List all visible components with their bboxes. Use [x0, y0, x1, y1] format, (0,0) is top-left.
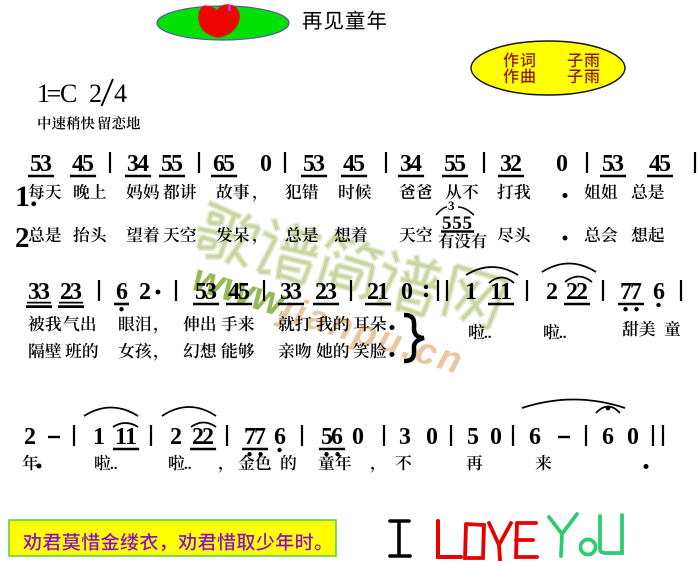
svg-text:6: 6 [602, 424, 614, 450]
svg-text:21: 21 [367, 279, 389, 305]
svg-text:0: 0 [556, 151, 568, 177]
svg-text:6: 6 [274, 424, 286, 450]
svg-text:55: 55 [161, 151, 183, 177]
svg-text:33: 33 [28, 279, 50, 305]
svg-text:0: 0 [352, 424, 364, 450]
svg-text:11: 11 [115, 424, 137, 450]
svg-text:53: 53 [195, 279, 217, 305]
svg-text:11: 11 [490, 279, 512, 305]
svg-text:6: 6 [529, 424, 541, 450]
svg-text:3: 3 [399, 424, 411, 450]
svg-text:53: 53 [602, 151, 624, 177]
svg-text:77: 77 [244, 424, 266, 450]
svg-text:55: 55 [444, 151, 466, 177]
svg-text:0: 0 [426, 424, 438, 450]
svg-text:45: 45 [72, 151, 94, 177]
svg-text:6: 6 [653, 279, 665, 305]
svg-text:2: 2 [24, 424, 36, 450]
svg-text:C: C [60, 79, 77, 108]
svg-text:..: .. [559, 326, 567, 342]
svg-text:45: 45 [649, 151, 671, 177]
svg-text:0: 0 [627, 424, 639, 450]
svg-text:77: 77 [620, 279, 642, 305]
svg-text:0: 0 [490, 424, 502, 450]
svg-text:32: 32 [500, 151, 522, 177]
svg-text:22: 22 [566, 279, 588, 305]
svg-text:34: 34 [127, 151, 149, 177]
svg-text:0: 0 [401, 279, 413, 305]
svg-text:6: 6 [116, 279, 128, 305]
svg-text:23: 23 [60, 279, 82, 305]
svg-text:..: .. [110, 457, 118, 473]
svg-text:1: 1 [465, 279, 477, 305]
svg-text:1: 1 [93, 424, 105, 450]
svg-text:56: 56 [321, 424, 343, 450]
svg-text:53: 53 [303, 151, 325, 177]
svg-text:2: 2 [546, 279, 558, 305]
svg-text:0: 0 [260, 151, 272, 177]
svg-text:45: 45 [228, 279, 250, 305]
svg-text:2: 2 [15, 222, 30, 254]
svg-text:45: 45 [343, 151, 365, 177]
svg-text:65: 65 [213, 151, 235, 177]
svg-text:5: 5 [467, 424, 479, 450]
svg-text:33: 33 [280, 279, 302, 305]
svg-text:1.: 1. [15, 180, 38, 213]
svg-text:22: 22 [192, 424, 214, 450]
svg-text:23: 23 [315, 279, 337, 305]
svg-text:4: 4 [114, 79, 127, 108]
svg-text:2: 2 [89, 79, 102, 108]
svg-text:3: 3 [448, 198, 455, 213]
svg-text:2: 2 [139, 279, 151, 305]
svg-text:..: .. [484, 326, 492, 342]
svg-text:53: 53 [30, 151, 52, 177]
svg-text:..: .. [184, 457, 192, 473]
svg-text:34: 34 [400, 151, 422, 177]
svg-text:=: = [47, 79, 62, 108]
svg-text:2: 2 [170, 424, 182, 450]
